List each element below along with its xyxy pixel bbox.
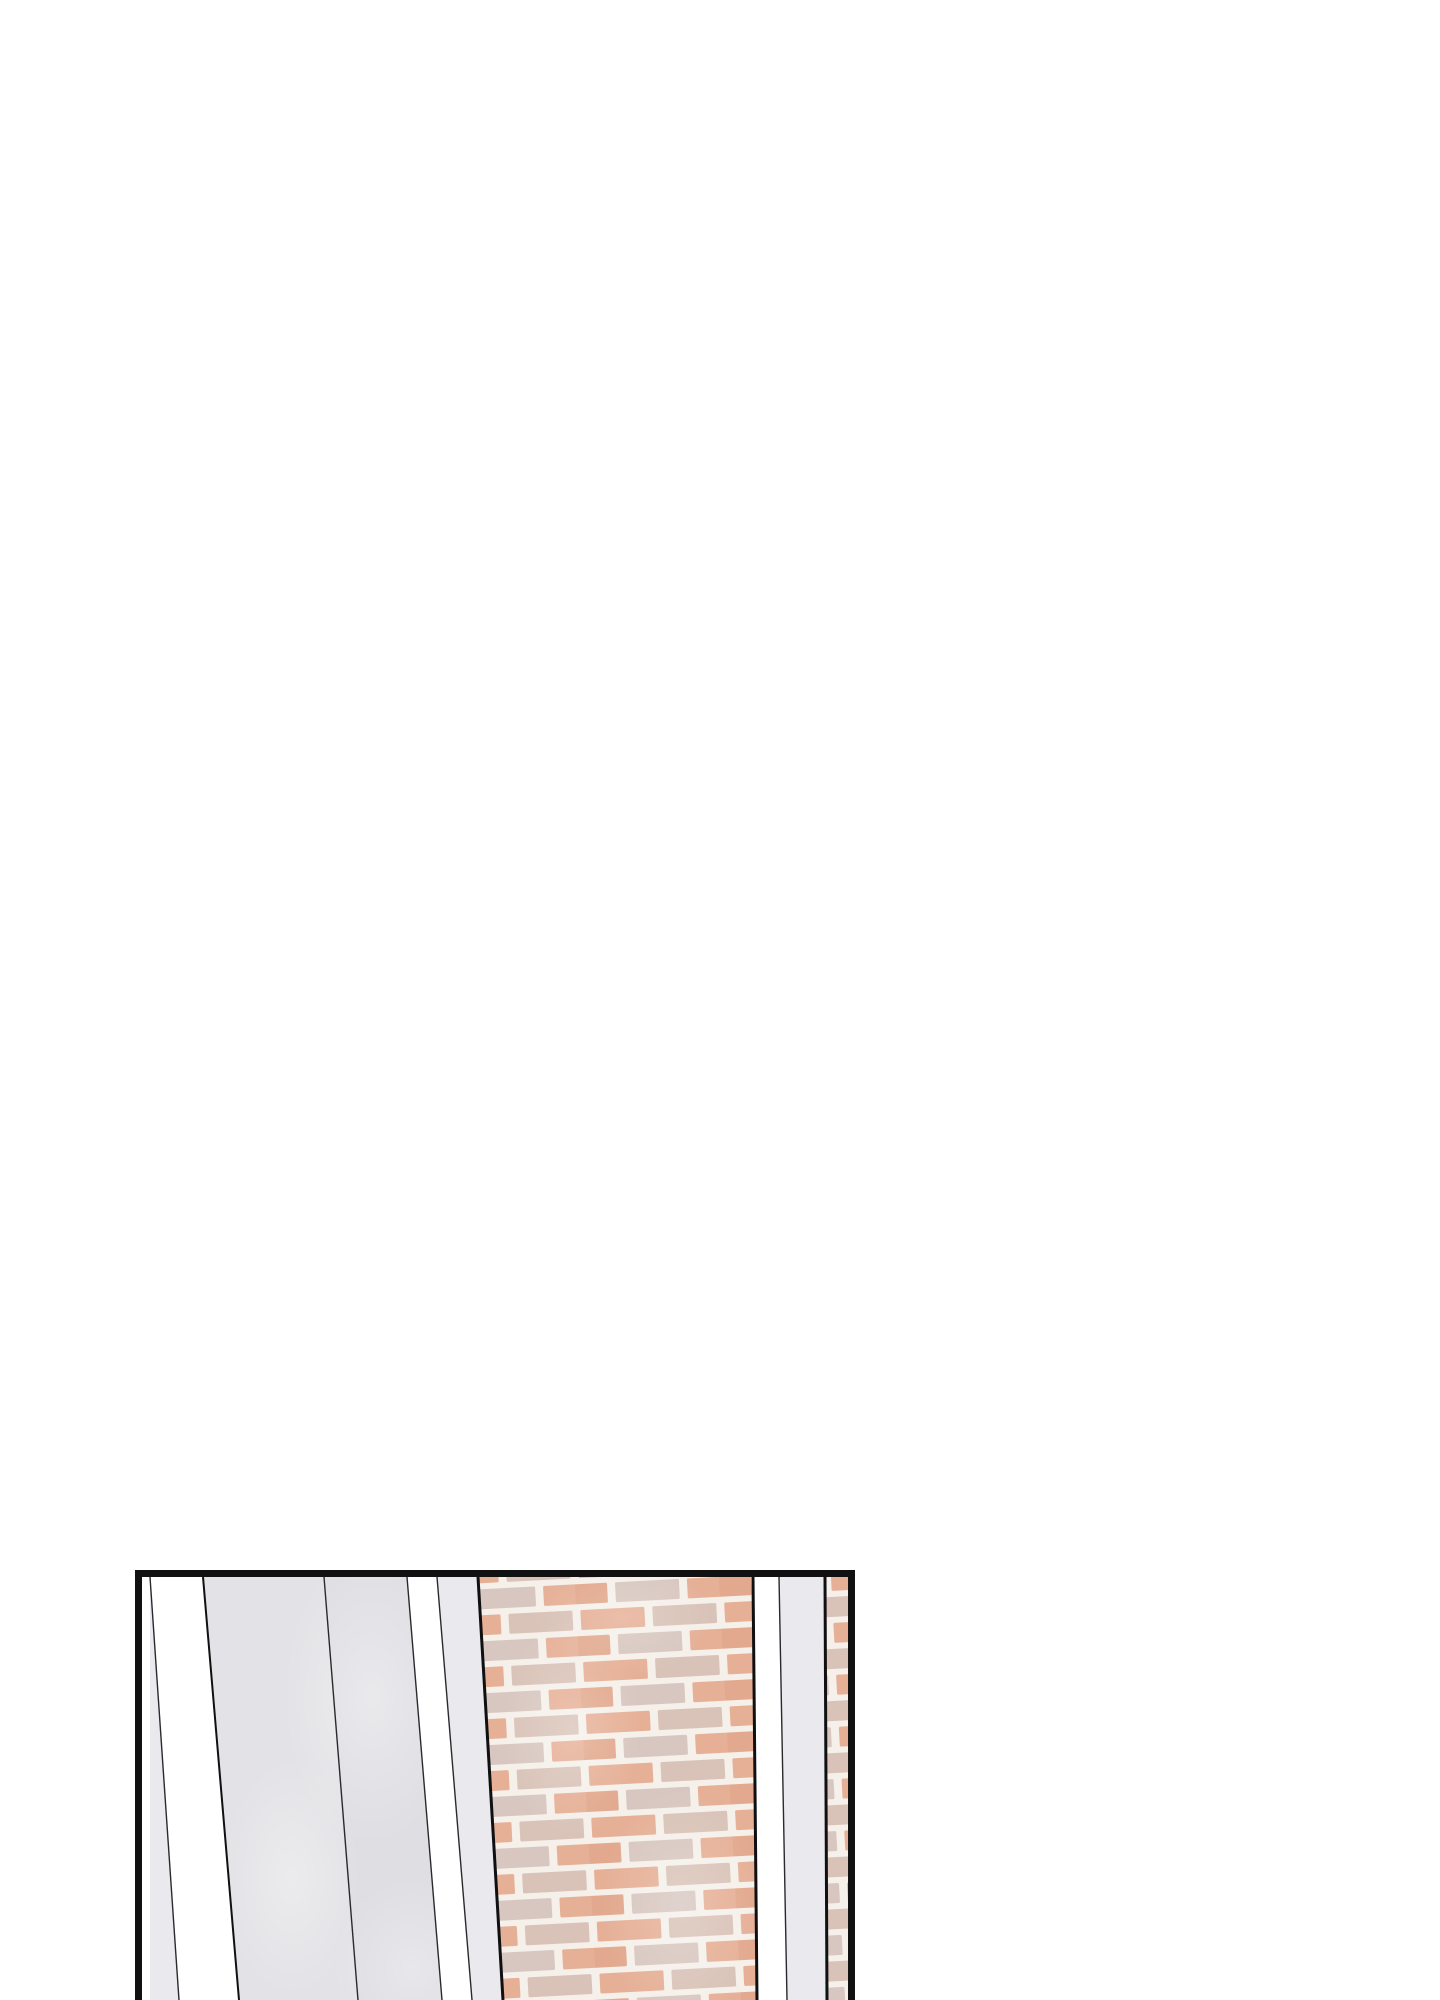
panel-artwork [142, 1577, 855, 2000]
page-background [0, 0, 1440, 2000]
brick-strip-right [825, 1577, 855, 2000]
comic-panel [135, 1570, 855, 2000]
right-brick-left-edge [825, 1577, 827, 2000]
